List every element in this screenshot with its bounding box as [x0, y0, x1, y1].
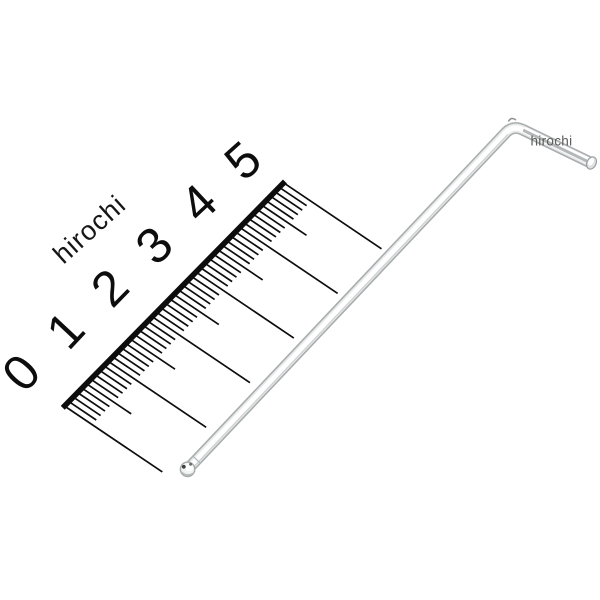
- long-arm-shade: [191, 135, 507, 469]
- ball-facet-mid: [189, 463, 192, 466]
- ruler-tick-major: [284, 183, 382, 249]
- ruler-tick-major: [196, 272, 294, 338]
- ruler-number: 2: [80, 258, 139, 317]
- ruler-tick-major: [240, 227, 338, 293]
- watermark-rotated: hirochi: [47, 189, 131, 269]
- ruler-tick-medium: [86, 384, 131, 414]
- ruler-tick-major: [108, 361, 206, 427]
- ruler-number: 0: [0, 344, 51, 402]
- product-photo: 012345hirochihirochi: [0, 0, 600, 600]
- watermark-flat: hirochi: [531, 134, 573, 149]
- ruler-tick-medium: [174, 294, 219, 324]
- ruler: 012345: [0, 130, 381, 472]
- ruler-number: 3: [125, 216, 184, 275]
- ball-facet-dark: [182, 465, 186, 469]
- ruler-tick-major: [152, 317, 250, 383]
- ruler-tick-medium: [262, 205, 307, 235]
- ruler-number: 4: [169, 173, 228, 233]
- ruler-tick-medium: [218, 250, 263, 280]
- photo-scene: 012345hirochihirochi: [0, 0, 600, 600]
- ruler-number: 1: [36, 301, 96, 360]
- ruler-tick-medium: [130, 339, 175, 369]
- ruler-number: 5: [214, 130, 272, 190]
- ruler-tick-major: [65, 406, 163, 472]
- elbow-shade-arc: [509, 118, 516, 120]
